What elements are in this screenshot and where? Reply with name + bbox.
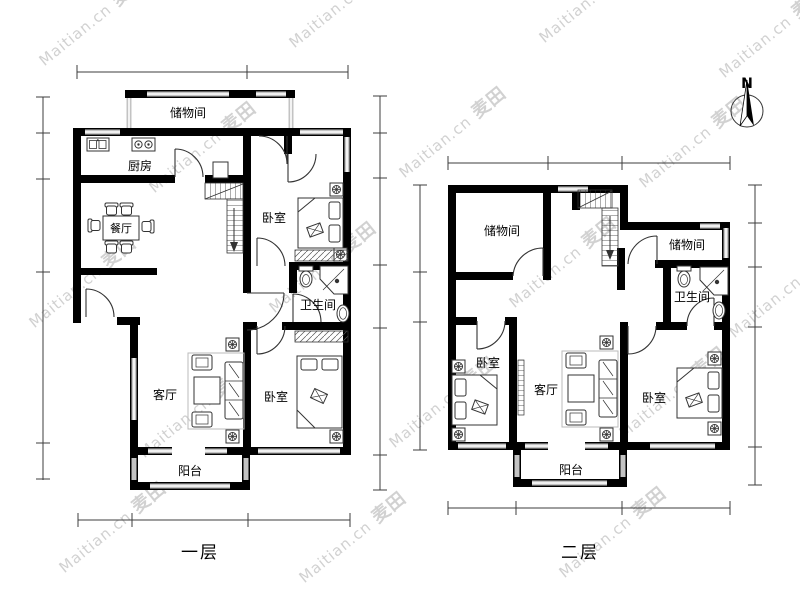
sofa-set-icon xyxy=(188,338,244,443)
floor1-bedroom-top-furniture xyxy=(295,183,348,261)
floor2-dim-top xyxy=(448,156,730,170)
floor1-walls xyxy=(73,90,351,490)
floor1-title: 一层 xyxy=(181,543,219,563)
floor1-bathroom-fixtures xyxy=(299,266,349,322)
room-label-storage: 储物间 xyxy=(484,223,520,238)
toilet-icon xyxy=(677,266,691,287)
floor2-bedroom-right-furniture xyxy=(677,352,722,435)
room-label-bathroom: 卫生间 xyxy=(300,298,336,312)
room-label-bedroom: 卧室 xyxy=(476,355,500,370)
toilet-icon xyxy=(299,266,313,287)
room-label-balcony: 阳台 xyxy=(559,462,583,477)
sink-icon xyxy=(337,305,349,322)
plant-icon xyxy=(452,360,465,373)
floor1-dim-left xyxy=(36,97,50,480)
floor1-plan: 储物间 厨房 餐厅 卧室 卫生间 客厅 卧室 阳台 一层 xyxy=(36,65,387,563)
room-label-dining: 餐厅 xyxy=(110,221,132,235)
room-label-storage: 储物间 xyxy=(669,237,705,252)
bed-icon xyxy=(452,375,497,425)
floorplan-canvas: Maitian.cn麦田 Maitian.cn麦田 Maitian.cn麦田 M… xyxy=(0,0,800,600)
floor1-dim-top xyxy=(77,65,348,79)
floor2-dim-left xyxy=(413,185,427,450)
floor1-kitchen-fixtures xyxy=(87,138,155,151)
north-arrow: N xyxy=(731,76,763,127)
floor1-bedroom-bottom-furniture xyxy=(295,331,348,443)
floor2-dim-right xyxy=(748,185,762,485)
wardrobe xyxy=(295,250,348,261)
stove-icon xyxy=(132,138,155,151)
floor2-plan: 储物间 储物间 卫生间 卧室 客厅 卧室 阳台 二层 xyxy=(413,156,762,563)
floor2-dim-bottom xyxy=(448,501,730,515)
room-label-bathroom: 卫生间 xyxy=(674,290,710,304)
plant-icon xyxy=(708,352,721,365)
room-label-kitchen: 厨房 xyxy=(128,158,152,173)
sofa-set-icon xyxy=(562,336,618,441)
room-label-bedroom: 卧室 xyxy=(262,210,286,225)
floor1-living-furniture xyxy=(188,338,244,443)
shower-icon xyxy=(320,266,348,294)
room-label-bedroom: 卧室 xyxy=(642,390,666,405)
floor1-dim-right xyxy=(373,96,387,490)
floor2-bedroom-left-furniture xyxy=(452,360,497,441)
floor1-dim-bottom xyxy=(78,513,350,527)
room-label-balcony: 阳台 xyxy=(178,463,202,478)
bed-icon xyxy=(677,368,722,418)
room-label-living: 客厅 xyxy=(534,382,558,397)
sink-icon xyxy=(713,302,725,319)
bed-icon xyxy=(298,198,343,248)
plant-icon xyxy=(330,183,343,196)
kitchen-sink-icon xyxy=(87,138,109,151)
room-label-storage: 储物间 xyxy=(170,105,206,120)
plant-icon xyxy=(708,422,721,435)
room-label-bedroom: 卧室 xyxy=(264,389,288,404)
floor2-title: 二层 xyxy=(561,543,599,563)
bed-icon xyxy=(297,356,342,428)
plant-icon xyxy=(330,430,343,443)
floorplan-drawing: 储物间 厨房 餐厅 卧室 卫生间 客厅 卧室 阳台 一层 xyxy=(0,0,800,600)
tv-cabinet xyxy=(518,360,524,415)
wardrobe xyxy=(295,331,348,342)
floor2-stairs xyxy=(578,190,618,266)
room-label-living: 客厅 xyxy=(153,387,177,402)
plant-icon xyxy=(452,428,465,441)
